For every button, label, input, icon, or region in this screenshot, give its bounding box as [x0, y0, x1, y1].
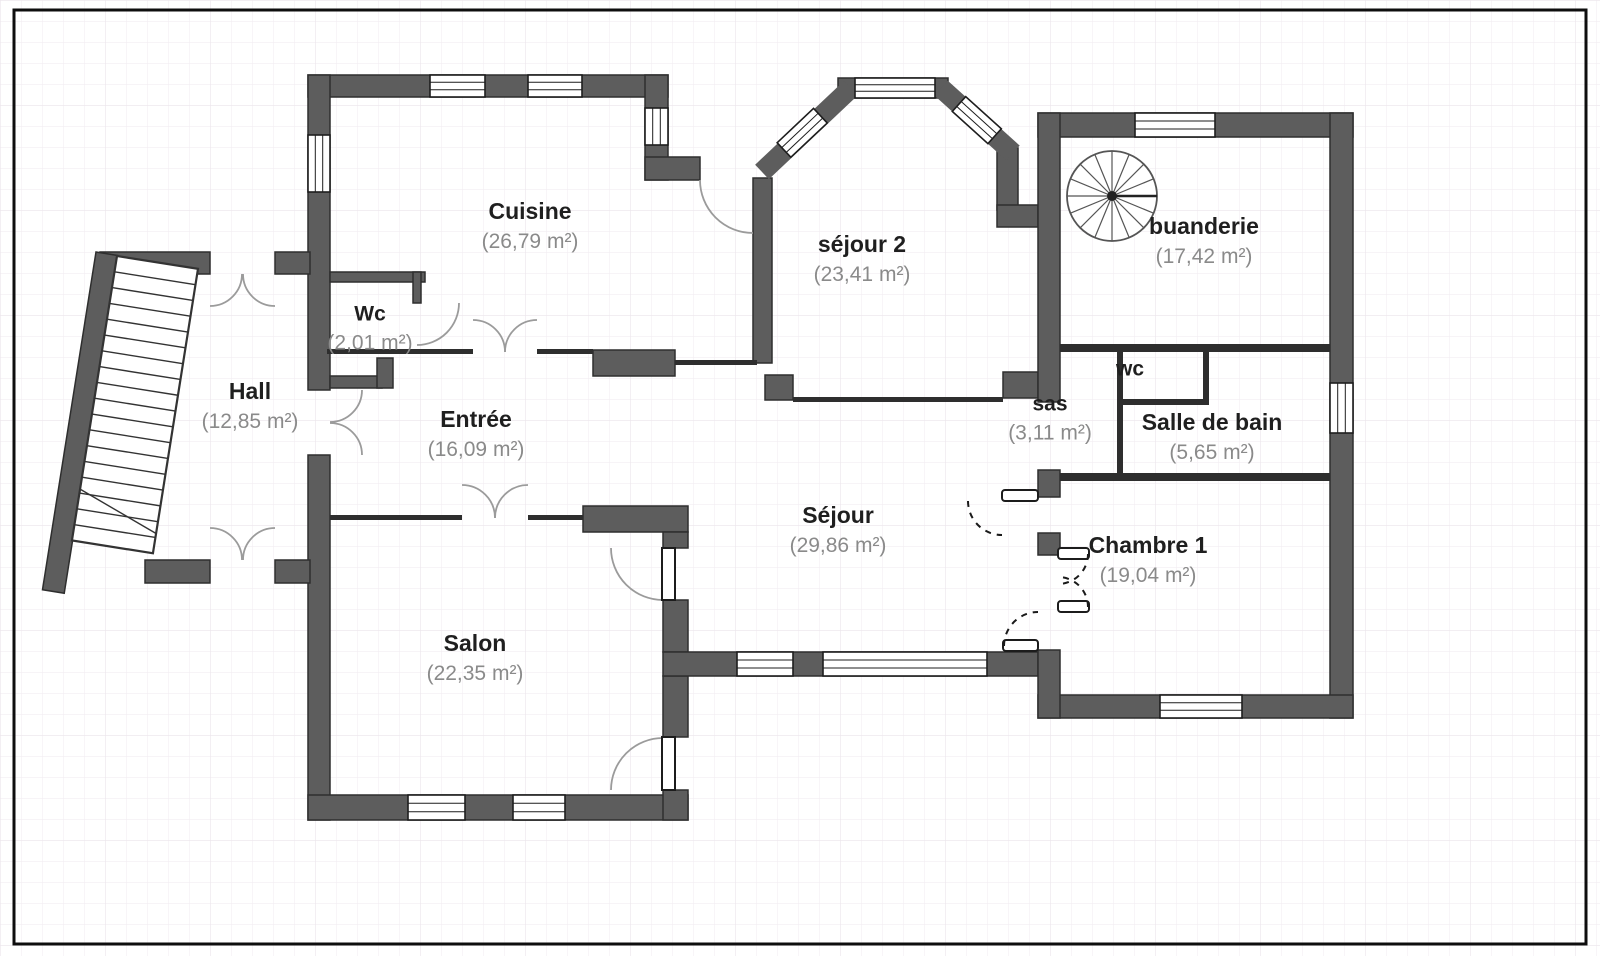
spiral-staircase-icon	[1067, 151, 1157, 241]
floorplan-page: Hall (12,85 m²) Wc (2,01 m²) Cuisine (26…	[0, 0, 1600, 956]
floorplan-drawing	[0, 0, 1600, 956]
